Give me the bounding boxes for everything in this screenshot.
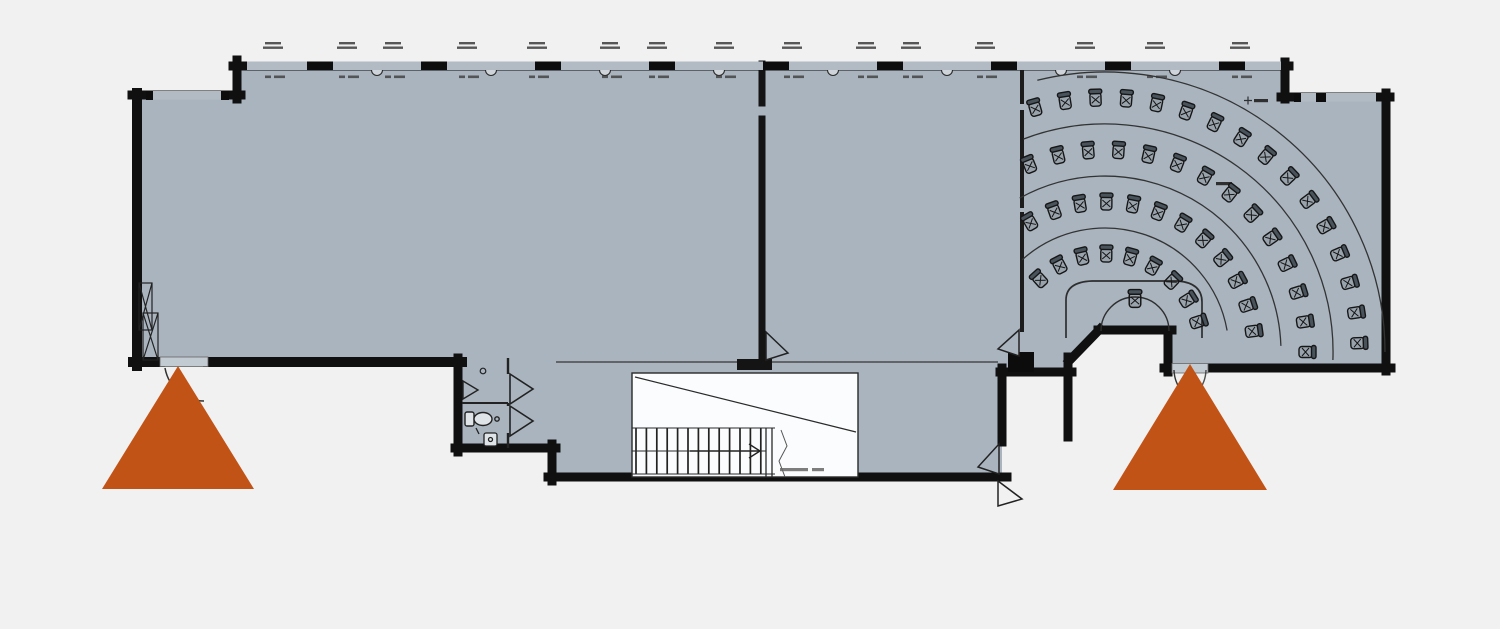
- window-mullion: [421, 62, 447, 71]
- sill-mark: [858, 76, 864, 79]
- divider-wall-endcap: [737, 359, 772, 370]
- window-label: [977, 42, 993, 44]
- window-mullion: [1294, 93, 1301, 102]
- window-label: [647, 47, 667, 49]
- window-label: [1145, 47, 1165, 49]
- window-label: [714, 47, 734, 49]
- seat-back: [1081, 141, 1094, 147]
- amphitheater-seat-icon: [1111, 141, 1125, 159]
- window-mullion: [221, 91, 229, 100]
- window-strip: [150, 91, 226, 100]
- window-label: [716, 42, 732, 44]
- amphitheater-seat-icon: [1089, 89, 1103, 106]
- seat-back: [1312, 346, 1317, 359]
- window-mullion: [991, 62, 1017, 71]
- floor-plan-svg: [0, 0, 1500, 629]
- window-label: [339, 42, 355, 44]
- amphitheater-seat-icon: [1351, 336, 1368, 350]
- window-label: [263, 47, 283, 49]
- window-mullion: [535, 62, 561, 71]
- window-mullion: [877, 62, 903, 71]
- window-label: [600, 47, 620, 49]
- window-mullion: [649, 62, 675, 71]
- window-label: [1232, 42, 1248, 44]
- sill-mark: [611, 76, 622, 79]
- sill-mark: [265, 76, 271, 79]
- window-mullion: [1316, 93, 1326, 102]
- sill-mark: [793, 76, 804, 79]
- amphitheater-seat-icon: [1119, 89, 1133, 107]
- window-mullion: [146, 91, 153, 100]
- sill-mark: [903, 76, 909, 79]
- amphitheater-seat-icon: [1081, 141, 1095, 159]
- amphitheater-seat-icon: [1299, 346, 1316, 359]
- seat-back: [1363, 336, 1368, 349]
- stair-outline: [632, 373, 858, 477]
- seat-back: [1100, 245, 1113, 250]
- seat-back: [1089, 89, 1102, 94]
- window-label: [903, 42, 919, 44]
- window-mullion: [1105, 62, 1131, 71]
- window-mullion: [763, 62, 789, 71]
- window-label: [602, 42, 618, 44]
- window-label: [1147, 42, 1163, 44]
- lectern-icon: [1128, 290, 1142, 308]
- sill-mark: [385, 76, 391, 79]
- stair-note-mark: [780, 468, 808, 471]
- window-label: [856, 47, 876, 49]
- window-label: [265, 42, 281, 44]
- sill-mark: [274, 76, 285, 79]
- stair-note-mark: [812, 468, 824, 471]
- lectern-icon: [1128, 290, 1142, 308]
- window-label: [858, 42, 874, 44]
- sill-mark: [725, 76, 736, 79]
- seat-back: [1257, 323, 1263, 336]
- seat-back: [1128, 290, 1142, 295]
- window-label: [782, 47, 802, 49]
- window-mullion: [307, 62, 333, 71]
- window-label: [1075, 47, 1095, 49]
- sill-mark: [658, 76, 669, 79]
- sill-mark: [1232, 76, 1238, 79]
- window-label: [901, 47, 921, 49]
- amphitheater-seat-icon: [1100, 193, 1113, 210]
- sill-mark: [339, 76, 345, 79]
- sill-mark: [468, 76, 479, 79]
- sill-mark: [784, 76, 790, 79]
- sill-mark: [602, 76, 608, 79]
- window-label: [385, 42, 401, 44]
- amphitheater-seat-icon: [1245, 323, 1264, 338]
- seat-back: [1100, 193, 1113, 198]
- sill-mark: [986, 76, 997, 79]
- window-label: [337, 47, 357, 49]
- door-leaf-icon: [160, 357, 208, 367]
- window-mullion: [1219, 62, 1245, 71]
- seat-back: [1308, 314, 1314, 328]
- window-label: [1230, 47, 1250, 49]
- sill-mark: [529, 76, 535, 79]
- sill-mark: [1086, 76, 1097, 79]
- seat-back: [1120, 89, 1133, 95]
- floor-plan-canvas: [0, 0, 1500, 629]
- seat-back: [1112, 141, 1125, 146]
- window-label: [975, 47, 995, 49]
- sill-mark: [459, 76, 465, 79]
- window-label: [459, 42, 475, 44]
- window-label: [383, 47, 403, 49]
- sill-mark: [1241, 76, 1252, 79]
- sill-mark: [977, 76, 983, 79]
- window-label: [527, 47, 547, 49]
- sill-mark: [394, 76, 405, 79]
- sill-mark: [867, 76, 878, 79]
- window-label: [529, 42, 545, 44]
- sill-mark: [1077, 76, 1083, 79]
- sill-mark: [348, 76, 359, 79]
- sill-mark: [649, 76, 655, 79]
- sill-mark: [912, 76, 923, 79]
- window-label: [457, 47, 477, 49]
- amphitheater-seat-icon: [1100, 245, 1113, 262]
- window-label: [649, 42, 665, 44]
- window-strip: [1298, 93, 1376, 102]
- sill-mark: [538, 76, 549, 79]
- window-label: [784, 42, 800, 44]
- window-label: [1077, 42, 1093, 44]
- sill-mark: [716, 76, 722, 79]
- stairwell: [632, 373, 858, 477]
- pillar: [1008, 352, 1034, 372]
